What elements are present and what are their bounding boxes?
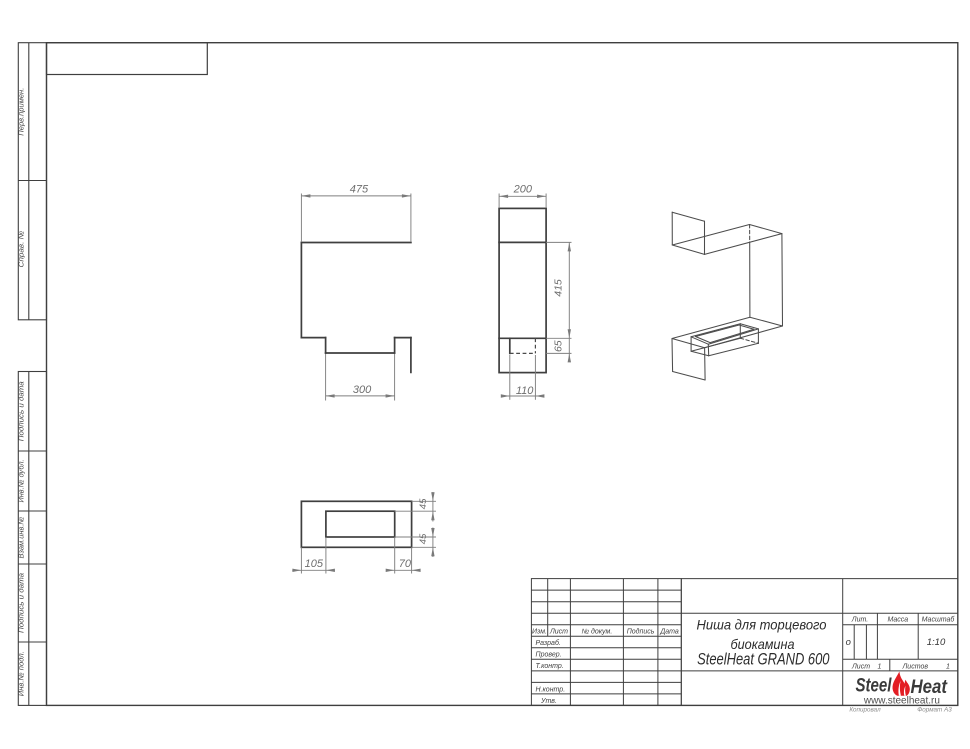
svg-text:Справ. №: Справ. № xyxy=(17,231,26,268)
svg-text:45: 45 xyxy=(418,533,429,544)
svg-text:Ниша для торцевого: Ниша для торцевого xyxy=(697,616,827,632)
svg-text:Масса: Масса xyxy=(887,617,908,624)
svg-text:Лист: Лист xyxy=(851,663,870,670)
svg-text:Разраб.: Разраб. xyxy=(536,639,561,647)
svg-text:Формат А3: Формат А3 xyxy=(917,707,952,714)
svg-text:Утв.: Утв. xyxy=(540,698,557,705)
svg-text:о: о xyxy=(846,637,851,648)
svg-text:Steel: Steel xyxy=(856,676,893,697)
svg-text:105: 105 xyxy=(305,558,324,570)
svg-text:Инв.№ подл.: Инв.№ подл. xyxy=(17,651,26,696)
svg-text:Подпись: Подпись xyxy=(627,627,655,635)
svg-text:1: 1 xyxy=(878,663,882,670)
svg-text:Лист: Лист xyxy=(549,628,568,635)
svg-text:1:10: 1:10 xyxy=(927,637,946,648)
svg-text:Копировал: Копировал xyxy=(849,707,881,714)
svg-text:№ докум.: № докум. xyxy=(581,627,612,635)
svg-text:Подпись и дата: Подпись и дата xyxy=(17,573,26,633)
svg-text:475: 475 xyxy=(350,184,369,196)
svg-text:110: 110 xyxy=(516,385,534,397)
svg-text:Взам.инв.№: Взам.инв.№ xyxy=(17,517,26,559)
svg-text:1: 1 xyxy=(946,663,950,670)
svg-text:Дата: Дата xyxy=(659,628,679,635)
svg-text:Инв.№ дубл.: Инв.№ дубл. xyxy=(17,460,26,503)
svg-text:SteelHeat GRAND 600: SteelHeat GRAND 600 xyxy=(697,649,830,668)
svg-text:70: 70 xyxy=(399,558,412,570)
svg-text:415: 415 xyxy=(553,279,565,297)
svg-text:45: 45 xyxy=(418,498,429,509)
svg-text:Т.контр.: Т.контр. xyxy=(536,663,564,670)
svg-text:65: 65 xyxy=(553,340,565,352)
svg-text:Изм.: Изм. xyxy=(532,628,547,635)
svg-text:300: 300 xyxy=(353,384,372,396)
svg-text:Лит.: Лит. xyxy=(851,617,868,624)
svg-text:200: 200 xyxy=(513,184,533,196)
svg-text:Перв.примен.: Перв.примен. xyxy=(17,88,26,136)
svg-text:Н.контр.: Н.контр. xyxy=(536,686,566,693)
svg-text:Провер.: Провер. xyxy=(536,652,562,659)
svg-text:Подпись и дата: Подпись и дата xyxy=(17,381,26,441)
svg-text:www.steelheat.ru: www.steelheat.ru xyxy=(863,695,940,706)
svg-text:Масштаб: Масштаб xyxy=(922,616,956,624)
svg-text:Листов: Листов xyxy=(902,663,929,670)
